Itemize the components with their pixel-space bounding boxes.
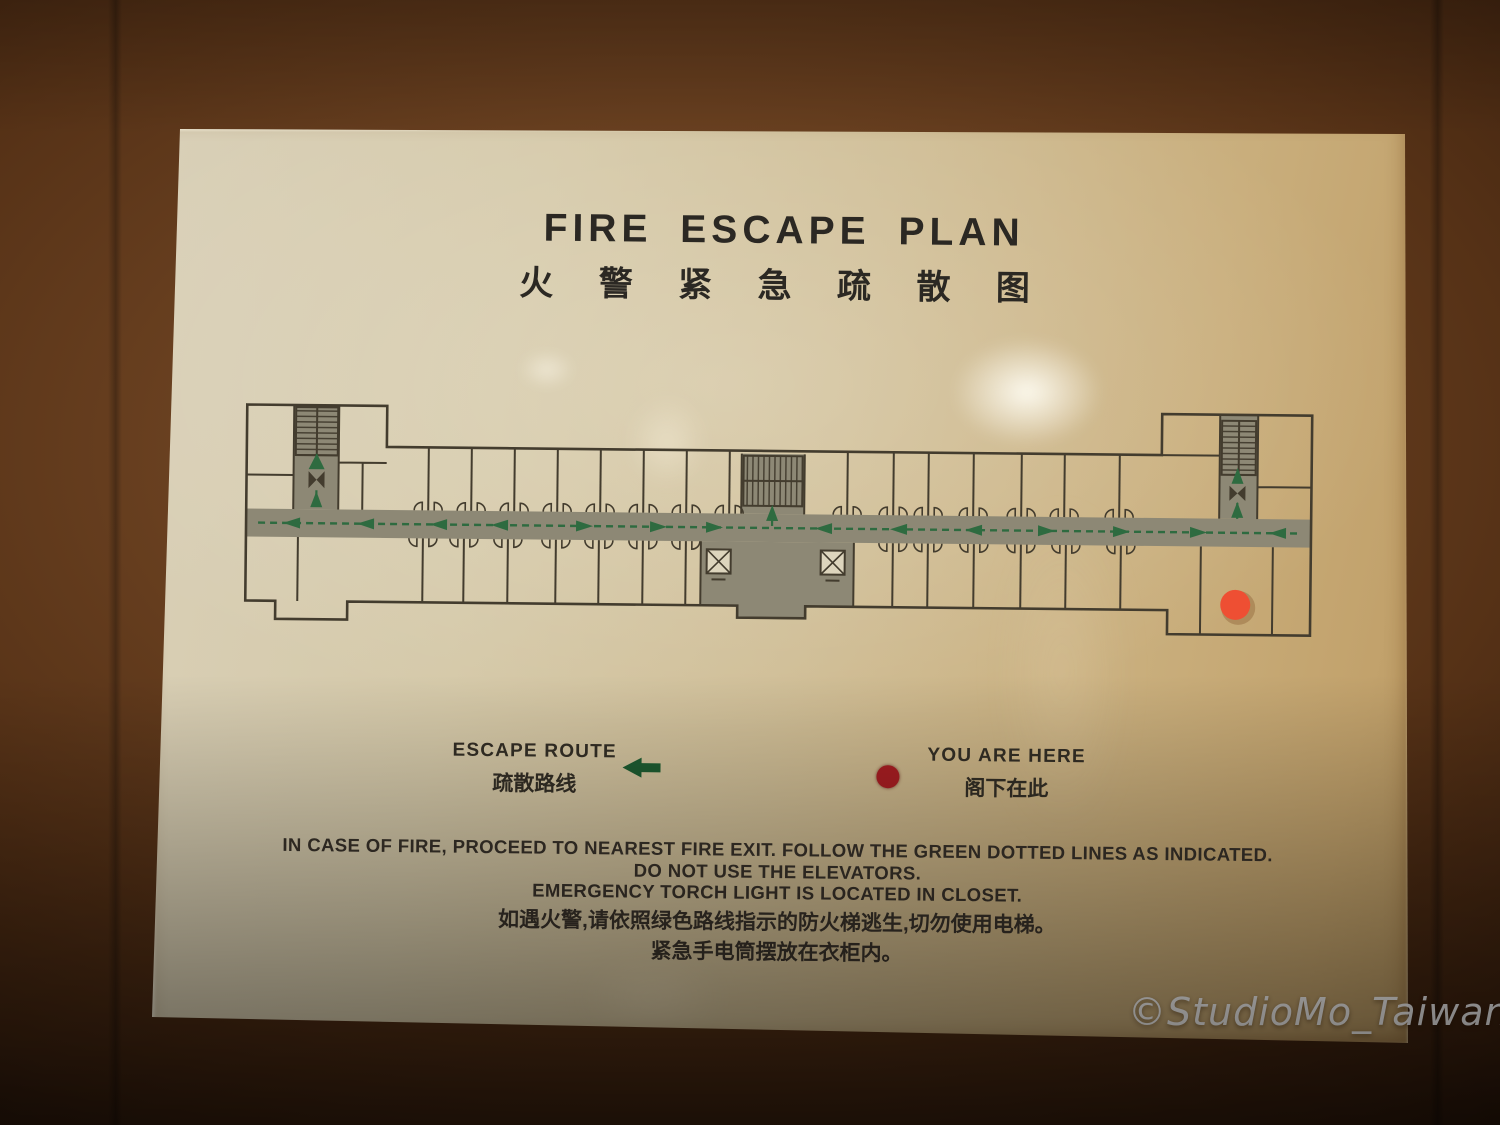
room-wall — [463, 539, 464, 603]
room-wall — [600, 449, 601, 512]
room-wall — [514, 448, 515, 511]
watermark: ©StudioMo_Taiwan — [1128, 990, 1500, 1034]
room-wall — [927, 544, 928, 608]
room-wall — [893, 452, 894, 515]
legend-escape-route-label-zh: 疏散路线 — [434, 766, 634, 798]
escape-route-arrow-icon — [622, 756, 662, 778]
wall-panel-seam — [1430, 0, 1444, 1125]
room-wall — [686, 450, 687, 513]
room-wall — [973, 544, 974, 608]
room-wall — [642, 541, 643, 605]
legend-you-are-here-label-en: YOU ARE HERE — [907, 744, 1107, 768]
room-wall — [1065, 545, 1066, 609]
room-wall — [928, 453, 929, 516]
room-wall — [422, 538, 423, 602]
floor-plan-diagram — [237, 396, 1320, 652]
fire-escape-sign-board: FIRE ESCAPE PLAN 火 警 紧 急 疏 散 图 — [152, 127, 1408, 1044]
right-staircase — [1222, 421, 1257, 475]
room-wall — [471, 448, 472, 511]
room-wall — [1020, 545, 1021, 609]
room-wall — [1064, 454, 1065, 517]
instructions-english: IN CASE OF FIRE, PROCEED TO NEAREST FIRE… — [149, 832, 1406, 910]
room-wall — [1120, 546, 1121, 610]
room-wall — [729, 451, 730, 514]
room-wall — [297, 537, 298, 601]
room-wall — [643, 450, 644, 513]
room-wall — [555, 540, 556, 604]
sign-content: FIRE ESCAPE PLAN 火 警 紧 急 疏 散 图 — [148, 121, 1414, 1051]
room-wall — [557, 449, 558, 512]
photo-fire-escape-sign: { "photo": { "watermark_text": "©StudioM… — [0, 0, 1500, 1125]
left-staircase — [296, 407, 339, 455]
sign-title-english: FIRE ESCAPE PLAN — [156, 203, 1412, 260]
wall-panel-seam — [108, 0, 122, 1125]
instructions-chinese: 如遇火警,请依照绿色路线指示的防火梯逃生,切勿使用电梯。 紧急手电筒摆放在衣柜内… — [148, 901, 1405, 974]
sign-title-chinese: 火 警 紧 急 疏 散 图 — [155, 252, 1411, 314]
legend-you-are-here-label-zh: 阁下在此 — [906, 771, 1106, 803]
room-wall — [847, 452, 848, 515]
room-wall — [1021, 454, 1022, 517]
center-staircase — [743, 456, 803, 507]
corridor-and-lobby-fill — [245, 404, 1311, 623]
room-wall — [973, 453, 974, 516]
legend-escape-route-label-en: ESCAPE ROUTE — [435, 739, 635, 763]
room-wall — [598, 540, 599, 604]
legend-you-are-here: YOU ARE HERE 阁下在此 — [906, 744, 1107, 803]
legend-escape-route: ESCAPE ROUTE 疏散路线 — [434, 739, 635, 798]
room-wall — [1119, 455, 1120, 518]
room-wall — [507, 539, 508, 603]
room-wall — [428, 447, 429, 510]
room-wall — [892, 543, 893, 607]
you-are-here-dot-icon — [876, 765, 899, 788]
room-wall — [685, 541, 686, 605]
